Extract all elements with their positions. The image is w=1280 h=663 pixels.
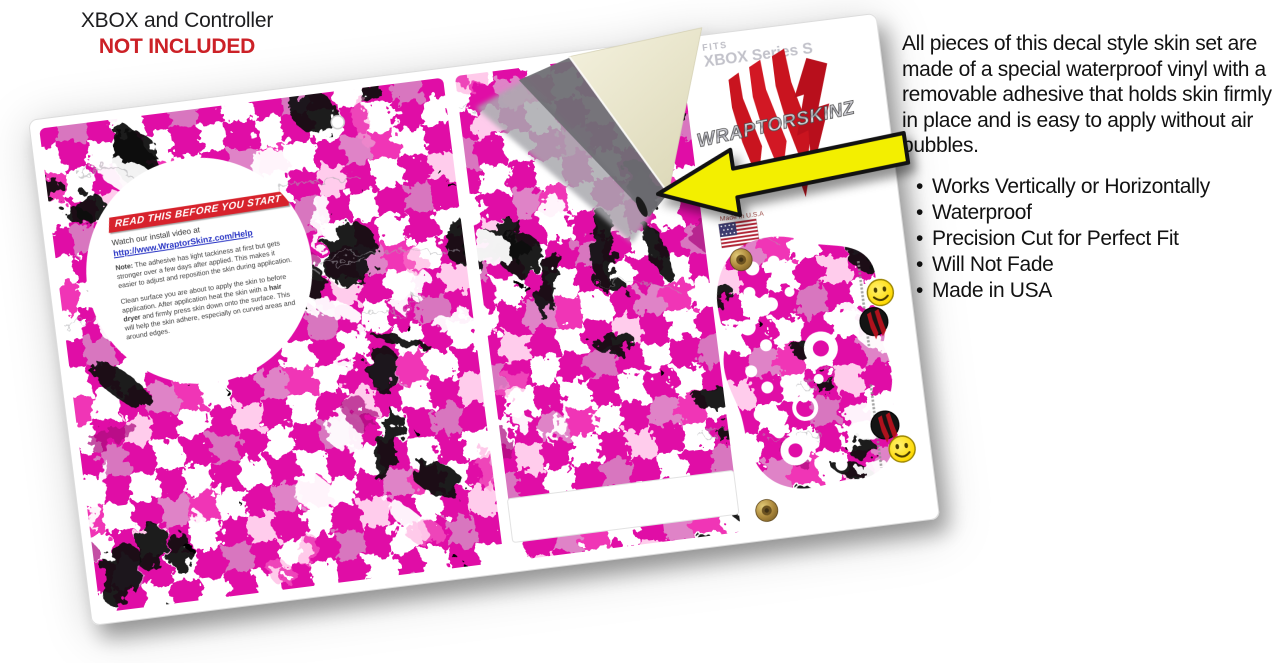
product-photo: XBOX and Controller NOT INCLUDED All pie… xyxy=(0,0,1280,663)
feature-text: Will Not Fade xyxy=(932,252,1053,278)
hang-hole-cutout xyxy=(330,115,345,130)
bullet-char: • xyxy=(916,278,923,304)
bullet-char: • xyxy=(916,200,923,226)
feature-text: Made in USA xyxy=(932,278,1052,304)
disclaimer-line2: NOT INCLUDED xyxy=(52,34,302,60)
note-label: Note: xyxy=(115,263,133,273)
feature-text: Precision Cut for Perfect Fit xyxy=(932,226,1179,252)
feature-item: •Works Vertically or Horizontally xyxy=(916,174,1278,200)
skin-sheet: FITS XBOX Series S WRAPTORSKINZ Made In … xyxy=(28,13,940,626)
bullet-char: • xyxy=(916,226,923,252)
feature-item: •Will Not Fade xyxy=(916,252,1278,278)
bullet-char: • xyxy=(916,252,923,278)
feature-item: •Waterproof xyxy=(916,200,1278,226)
feature-list: •Works Vertically or Horizontally •Water… xyxy=(916,174,1278,304)
description-paragraph: All pieces of this decal style skin set … xyxy=(902,31,1278,159)
feature-text: Works Vertically or Horizontally xyxy=(932,174,1210,200)
disclaimer: XBOX and Controller NOT INCLUDED xyxy=(52,8,302,59)
feature-item: •Precision Cut for Perfect Fit xyxy=(916,226,1278,252)
feature-text: Waterproof xyxy=(932,200,1032,226)
description-block: All pieces of this decal style skin set … xyxy=(902,31,1278,304)
disclaimer-line1: XBOX and Controller xyxy=(52,8,302,34)
feature-item: •Made in USA xyxy=(916,278,1278,304)
